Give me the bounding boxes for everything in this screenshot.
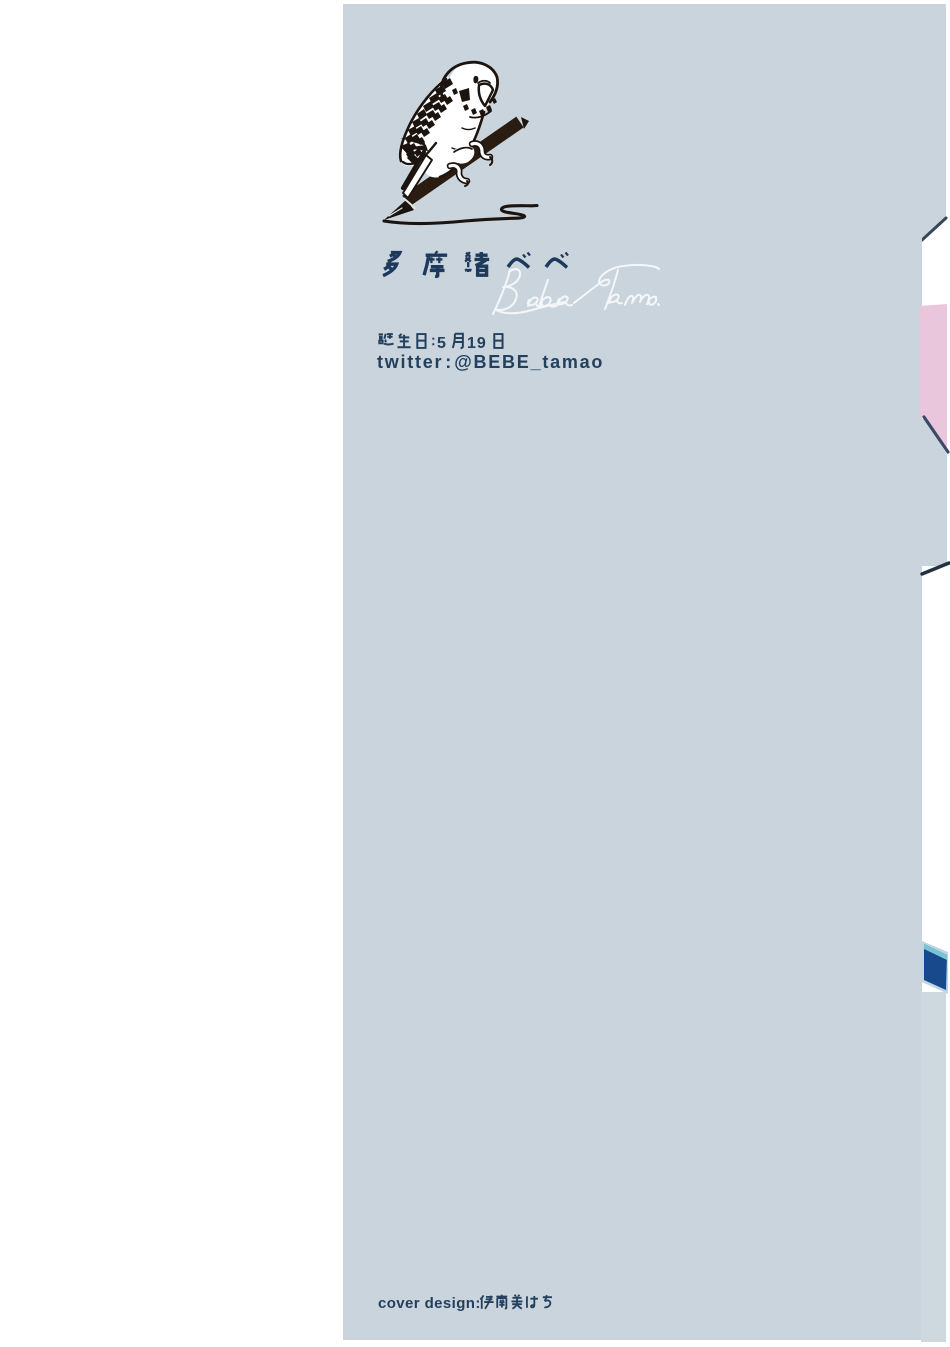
- svg-text:5: 5: [437, 335, 446, 351]
- svg-text:19: 19: [467, 335, 487, 351]
